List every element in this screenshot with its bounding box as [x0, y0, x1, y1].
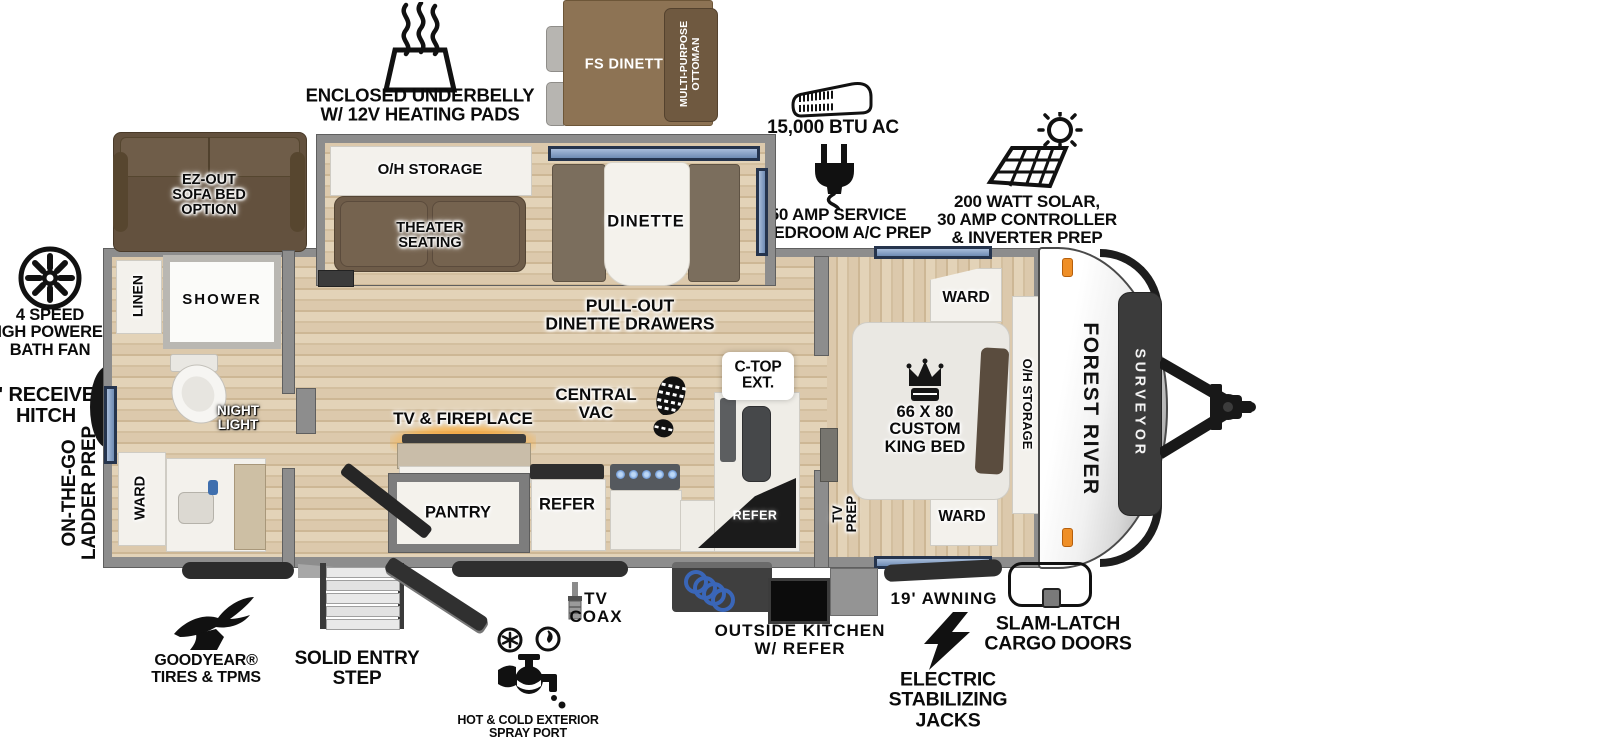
outside-kitchen-box [830, 568, 878, 616]
night-light-label: NIGHT LIGHT [217, 404, 259, 432]
callout-entry-step: SOLID ENTRY STEP [295, 649, 420, 689]
solar-panel-icon [982, 112, 1084, 202]
dinette-chair [546, 26, 564, 72]
callout-ladder-prep: ON-THE-GO LADDER PREP [60, 426, 100, 560]
central-vac-label: CENTRAL VAC [555, 386, 636, 422]
sofa-armrest [113, 152, 128, 232]
oh-storage-slide-label: O/H STORAGE [378, 162, 483, 178]
burner [668, 470, 677, 479]
burner [629, 470, 638, 479]
marker-light [1062, 258, 1073, 277]
marker-light [1062, 528, 1073, 547]
spray-port-icon [492, 626, 592, 710]
dinette-bench [688, 164, 740, 282]
shower-label: SHOWER [182, 292, 262, 308]
pantry-label: PANTRY [425, 504, 491, 521]
burner [616, 470, 625, 479]
callout-goodyear: GOODYEAR® TIRES & TPMS [151, 653, 261, 687]
burner [655, 470, 664, 479]
water-hose-coil [711, 588, 735, 612]
bath-cabinet [234, 464, 266, 550]
outside-refer-label: REFER [733, 509, 778, 522]
outside-tv [768, 578, 830, 624]
callout-solar: 200 WATT SOLAR, 30 AMP CONTROLLER & INVE… [937, 193, 1117, 247]
counter-appliance [720, 398, 736, 462]
rv-floorplan-diagram: ENCLOSED UNDERBELLY W/ 12V HEATING PADS … [0, 0, 1600, 746]
callout-cargo-doors: SLAM-LATCH CARGO DOORS [984, 614, 1131, 655]
lightning-bolt-icon [924, 612, 970, 670]
sofa-armrest [290, 152, 305, 232]
bath-faucet [208, 480, 218, 495]
bath-wall [282, 250, 295, 394]
bedroom-window-top [874, 246, 992, 259]
oven-front [610, 490, 682, 550]
fs-dinette-label: FS DINETTE [585, 57, 674, 72]
tv-prep-label: TV PREP [831, 496, 859, 533]
brand-model-label: SURVEYOR [1131, 348, 1146, 457]
crown-icon [903, 358, 947, 404]
goodyear-wingfoot-icon [172, 592, 256, 654]
pullout-drawers-label: PULL-OUT DINETTE DRAWERS [545, 297, 714, 334]
callout-spray-port: HOT & COLD EXTERIOR SPRAY PORT [457, 714, 598, 740]
sofa-back-cushion [120, 137, 300, 177]
oh-storage-bed-label: O/H STORAGE [1020, 359, 1034, 450]
king-bed-label: 66 X 80 CUSTOM KING BED [885, 404, 966, 456]
callout-tv-coax: TV COAX [569, 590, 622, 626]
sofa-cushion-divider [208, 137, 210, 175]
hitch-a-frame [1160, 350, 1256, 466]
dinette-window [548, 146, 760, 161]
power-plug-icon [812, 144, 858, 210]
callout-stab-jacks: ELECTRIC STABILIZING JACKS [889, 669, 1008, 730]
ctop-ext-label: C-TOP EXT. [735, 360, 782, 393]
furnace-vent [318, 270, 354, 287]
bedroom-wall [814, 470, 829, 568]
ward-front-top-label: WARD [942, 290, 989, 306]
dinette-label: DINETTE [607, 213, 685, 230]
rear-window [104, 386, 117, 464]
callout-underbelly: ENCLOSED UNDERBELLY W/ 12V HEATING PADS [306, 86, 535, 125]
callout-awning: 19' AWNING [891, 590, 998, 608]
refrigerator [531, 479, 606, 551]
bath-sink [178, 492, 214, 524]
brand-maker-label: FOREST RIVER [1079, 322, 1101, 495]
awning-bar-left [452, 561, 628, 577]
callout-ac: 15,000 BTU AC [767, 118, 899, 138]
theater-seating-label: THEATER SEATING [396, 221, 463, 251]
ac-unit-icon [788, 78, 874, 122]
tv-fireplace-label: TV & FIREPLACE [393, 410, 533, 428]
ottoman-label: MULTI-PURPOSE OTTOMAN [678, 21, 702, 107]
dinette-chair [546, 82, 564, 126]
underbody-bar [182, 562, 294, 579]
burner [642, 470, 651, 479]
heating-pads-icon [378, 2, 462, 94]
dinette-bench [552, 164, 606, 282]
bath-fan-icon [16, 244, 84, 312]
wall-unit [296, 388, 316, 434]
ward-bath-label: WARD [133, 476, 148, 520]
bedroom-wall [814, 256, 829, 356]
slideout-side-window [756, 168, 768, 256]
bath-wall [282, 468, 295, 568]
ward-front-bottom-label: WARD [938, 509, 985, 525]
cargo-door-latch [1042, 588, 1061, 608]
ez-sofa-label: EZ-OUT SOFA BED OPTION [172, 173, 246, 219]
refrigerator-top [530, 464, 604, 480]
refer-label: REFER [539, 496, 595, 513]
callout-bath-fan: 4 SPEED HIGH POWERED BATH FAN [0, 307, 114, 359]
kitchen-sink [742, 406, 771, 482]
callout-outside-kitchen: OUTSIDE KITCHEN W/ REFER [715, 622, 886, 658]
linen-label: LINEN [131, 275, 146, 317]
tv-prep-cabinet [820, 428, 838, 482]
